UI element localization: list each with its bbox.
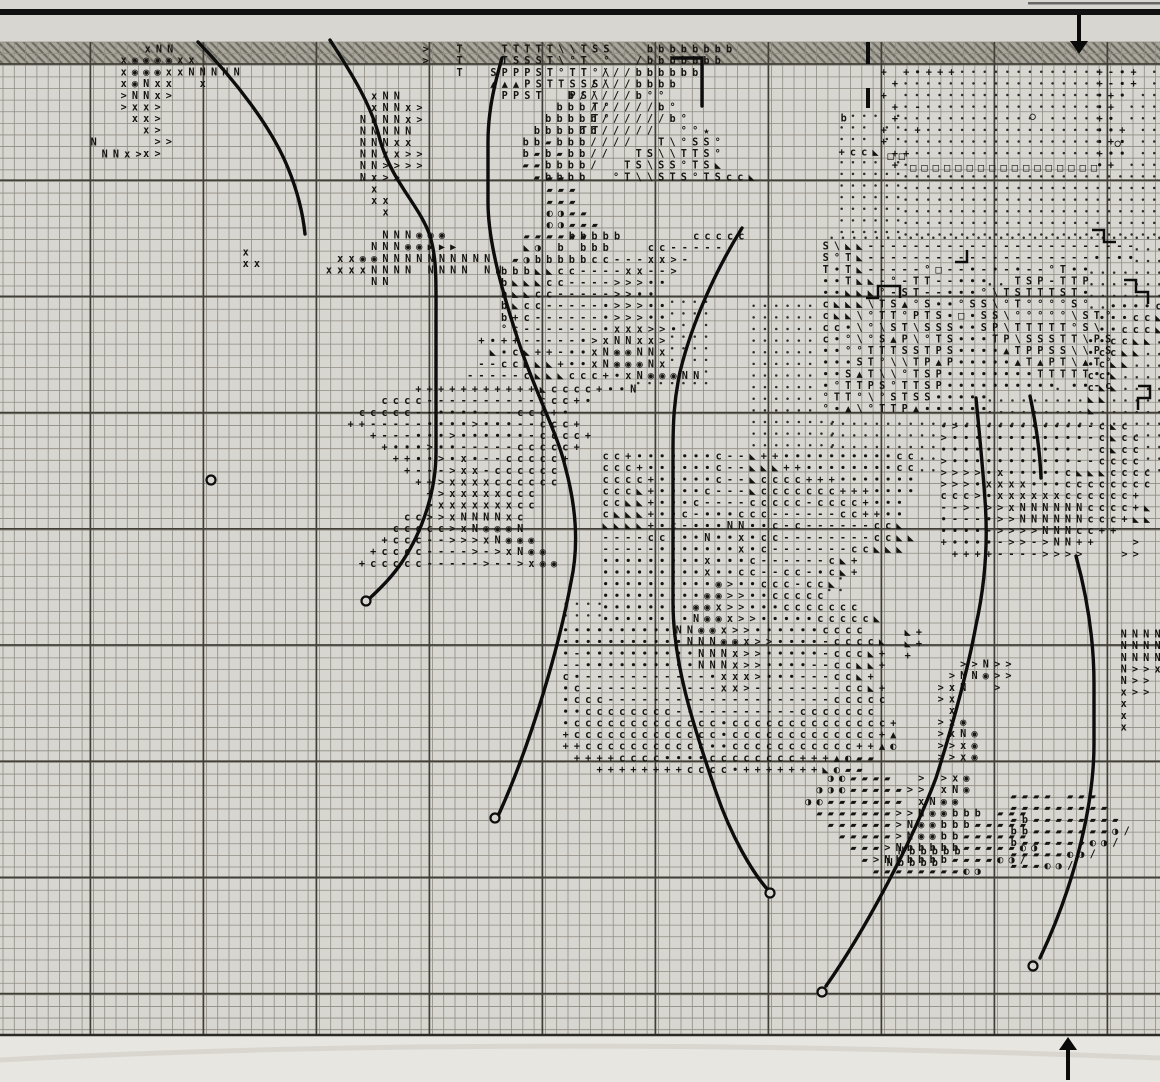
svg-text:c: c [1121, 336, 1127, 347]
svg-text:c: c [551, 466, 557, 477]
svg-text:▰: ▰ [884, 831, 891, 843]
svg-text:+: + [1133, 491, 1139, 502]
svg-text:>: > [994, 660, 1000, 671]
svg-text:▰: ▰ [862, 773, 869, 785]
svg-text:c: c [1099, 445, 1105, 456]
svg-text:/: / [647, 126, 653, 137]
svg-text:□: □ [1080, 162, 1087, 174]
svg-text:-: - [682, 255, 688, 266]
svg-text:◣: ◣ [896, 520, 903, 532]
svg-text:S: S [569, 79, 575, 90]
svg-text:>: > [938, 718, 944, 729]
svg-text:▰: ▰ [1033, 849, 1040, 861]
svg-text:c: c [562, 431, 568, 442]
svg-text:◉: ◉ [918, 831, 925, 843]
svg-text:x: x [254, 259, 260, 270]
svg-text:N: N [648, 348, 654, 359]
svg-text:c: c [777, 718, 783, 729]
svg-text:◣: ◣ [636, 485, 643, 497]
svg-text:c: c [528, 477, 534, 488]
svg-text:c: c [772, 591, 778, 602]
svg-text:>: > [873, 855, 879, 866]
svg-text:>: > [472, 536, 478, 547]
svg-text:c: c [614, 475, 620, 486]
svg-text:-: - [438, 559, 444, 570]
svg-text:c: c [749, 498, 755, 509]
svg-text:T: T [547, 79, 553, 90]
svg-text:-: - [992, 253, 998, 264]
svg-text:◣: ◣ [512, 300, 519, 312]
svg-text:N: N [721, 660, 727, 671]
svg-text:c: c [614, 486, 620, 497]
svg-text:c: c [659, 243, 665, 254]
svg-text:◣: ◣ [1133, 347, 1140, 359]
svg-text:◉: ◉ [721, 636, 728, 648]
svg-text:▲: ▲ [502, 78, 509, 90]
svg-text:c: c [868, 707, 874, 718]
svg-text:°: ° [890, 381, 896, 392]
svg-text:-: - [704, 243, 710, 254]
svg-text:-: - [569, 278, 575, 289]
svg-text:-: - [1094, 381, 1100, 392]
svg-text:+: + [914, 126, 920, 137]
svg-text:c: c [517, 477, 523, 488]
svg-text:-: - [546, 324, 552, 335]
svg-text:x: x [132, 102, 138, 113]
svg-text:x: x [704, 568, 710, 579]
svg-text:◉: ◉ [439, 230, 446, 242]
svg-text:c: c [687, 742, 693, 753]
svg-text:>: > [997, 514, 1003, 525]
svg-text:>: > [637, 313, 643, 324]
svg-text:>: > [755, 637, 761, 648]
svg-text:T: T [669, 172, 675, 183]
svg-text:c: c [528, 443, 534, 454]
svg-text:-: - [574, 660, 580, 671]
svg-text:-: - [381, 431, 387, 442]
svg-text:c: c [952, 491, 958, 502]
svg-text:+: + [974, 549, 980, 560]
svg-text:x: x [1054, 491, 1060, 502]
svg-text:N: N [360, 115, 366, 126]
svg-text:S: S [947, 346, 953, 357]
svg-text:◑: ◑ [828, 773, 835, 785]
svg-text:▰: ▰ [1022, 860, 1029, 872]
svg-text:c: c [642, 742, 648, 753]
svg-text:+: + [868, 742, 874, 753]
svg-text:+: + [664, 765, 670, 776]
svg-text:>: > [438, 477, 444, 488]
svg-text:\: \ [647, 161, 653, 172]
svg-text:°: ° [603, 56, 609, 67]
chart-svg: x◉◉◉◉xxxNNx◉◉◉xxNNNNNx◉Nxxx>NNx>>xx>xx>x… [0, 0, 1160, 1082]
svg-text:S: S [1082, 311, 1088, 322]
svg-text:>: > [727, 591, 733, 602]
svg-text:N: N [394, 231, 400, 242]
svg-text:-: - [596, 684, 602, 695]
svg-text:b: b [557, 255, 563, 266]
svg-text:c: c [596, 707, 602, 718]
svg-text:c: c [862, 614, 868, 625]
svg-text:S: S [1037, 334, 1043, 345]
svg-text:°: ° [1071, 323, 1077, 334]
svg-text:▰: ▰ [839, 819, 846, 831]
svg-text:-: - [879, 265, 885, 276]
svg-text:T: T [902, 323, 908, 334]
svg-text:>: > [154, 137, 160, 148]
svg-text:+: + [755, 765, 761, 776]
svg-text:c: c [829, 568, 835, 579]
svg-text:▰: ▰ [1022, 849, 1029, 861]
svg-text:◣: ◣ [1144, 502, 1151, 514]
svg-text:-: - [806, 544, 812, 555]
svg-text:c: c [540, 443, 546, 454]
svg-text:\: \ [558, 56, 564, 67]
svg-text:+: + [879, 649, 885, 660]
svg-text:>: > [918, 785, 924, 796]
svg-text:-: - [811, 660, 817, 671]
svg-text:□: □ [887, 151, 894, 163]
svg-text:◣: ◣ [1087, 393, 1094, 405]
svg-text:-: - [1003, 242, 1009, 253]
svg-text:c: c [540, 477, 546, 488]
svg-text:c: c [585, 742, 591, 753]
svg-text:□: □ [899, 151, 906, 163]
svg-text:-: - [472, 443, 478, 454]
svg-text:N: N [200, 68, 206, 79]
svg-text:x: x [121, 68, 127, 79]
svg-text:▰: ▰ [569, 219, 576, 231]
svg-text:▶: ▶ [450, 242, 457, 253]
svg-text:°: ° [868, 311, 874, 322]
svg-text:◉: ◉ [540, 546, 547, 558]
svg-text:-: - [868, 242, 874, 253]
svg-text:c: c [625, 486, 631, 497]
svg-text:-: - [709, 695, 715, 706]
svg-text:▰: ▰ [592, 219, 599, 231]
svg-text:c: c [698, 765, 704, 776]
svg-text:x: x [603, 336, 609, 347]
svg-text:>: > [1031, 526, 1037, 537]
svg-text:-: - [591, 290, 597, 301]
svg-text:▰: ▰ [512, 254, 519, 266]
svg-text:S: S [669, 161, 675, 172]
svg-text:c: c [896, 452, 902, 463]
svg-text:c: c [738, 568, 744, 579]
svg-text:N: N [1065, 514, 1071, 525]
svg-text:◣: ◣ [868, 275, 875, 287]
svg-text:\: \ [868, 393, 874, 404]
svg-text:-: - [528, 419, 534, 430]
svg-text:▰: ▰ [1010, 802, 1017, 814]
svg-text:>: > [949, 741, 955, 752]
svg-text:c: c [596, 718, 602, 729]
svg-text:c: c [761, 533, 767, 544]
svg-text:°: ° [1003, 300, 1009, 311]
svg-text:N: N [1132, 641, 1138, 652]
svg-text:-: - [947, 242, 953, 253]
svg-text:-: - [483, 443, 489, 454]
svg-text:>: > [461, 536, 467, 547]
svg-text:◉: ◉ [517, 535, 524, 547]
svg-text:b: b [941, 832, 947, 843]
svg-text:c: c [851, 603, 857, 614]
svg-text:x: x [243, 248, 249, 259]
svg-text:b: b [647, 79, 653, 90]
svg-text:▰: ▰ [873, 773, 880, 785]
svg-text:-: - [591, 278, 597, 289]
svg-text:/: / [602, 149, 608, 160]
svg-text:S: S [1049, 334, 1055, 345]
svg-text:\: \ [868, 300, 874, 311]
svg-text:-: - [512, 371, 518, 382]
svg-text:c: c [817, 603, 823, 614]
svg-text:-: - [574, 649, 580, 660]
svg-text:◑: ◑ [523, 254, 530, 266]
svg-text:-: - [535, 313, 541, 324]
svg-text:N: N [394, 103, 400, 114]
svg-text:-: - [727, 452, 733, 463]
svg-text:□: □ [1091, 162, 1098, 174]
svg-text:-: - [795, 533, 801, 544]
svg-text:c: c [596, 730, 602, 741]
svg-text:\: \ [856, 311, 862, 322]
svg-text:-: - [772, 568, 778, 579]
svg-text:▰: ▰ [963, 854, 970, 866]
svg-text:+: + [948, 68, 954, 79]
svg-text:N: N [143, 79, 149, 90]
svg-text:P: P [992, 323, 998, 334]
svg-text:◑: ◑ [558, 207, 565, 219]
svg-text:-: - [913, 253, 919, 264]
svg-text:b: b [658, 103, 664, 114]
svg-text:-: - [370, 419, 376, 430]
svg-text:-: - [603, 290, 609, 301]
svg-text:x: x [371, 92, 377, 103]
svg-text:T: T [658, 137, 664, 148]
svg-text:◐: ◐ [546, 207, 553, 219]
svg-text:-: - [732, 707, 738, 718]
svg-text:c: c [528, 454, 534, 465]
svg-text:▰: ▰ [1067, 837, 1074, 849]
svg-text:▰: ▰ [1067, 791, 1074, 803]
svg-text:◣: ◣ [1133, 513, 1140, 525]
svg-text:N: N [382, 92, 388, 103]
svg-text:>: > [994, 683, 1000, 694]
svg-text:c: c [517, 512, 523, 523]
svg-text:+: + [926, 68, 932, 79]
svg-text:T: T [536, 91, 542, 102]
svg-text:-: - [608, 695, 614, 706]
svg-text:P: P [513, 91, 519, 102]
svg-text:N: N [405, 254, 411, 265]
svg-text:-: - [952, 514, 958, 525]
svg-text:◣: ◣ [885, 543, 892, 555]
svg-text:-: - [879, 253, 885, 264]
svg-text:c: c [851, 498, 857, 509]
svg-text:+: + [449, 385, 455, 396]
svg-text:c: c [834, 637, 840, 648]
svg-text:c: c [795, 603, 801, 614]
svg-text:▲: ▲ [513, 78, 520, 90]
french-knot-marker [491, 814, 500, 823]
svg-text:c: c [619, 753, 625, 764]
svg-text:x: x [483, 536, 489, 547]
svg-text:-: - [506, 408, 512, 419]
svg-text:+: + [546, 348, 552, 359]
svg-text:P: P [936, 369, 942, 380]
svg-text:-: - [952, 503, 958, 514]
svg-text:-: - [494, 443, 500, 454]
svg-text:°: ° [681, 126, 687, 137]
svg-text:c: c [603, 255, 609, 266]
svg-text:x: x [949, 694, 955, 705]
svg-text:c: c [427, 524, 433, 535]
svg-text:N: N [687, 637, 693, 648]
svg-text:/: / [624, 68, 630, 79]
svg-text:+: + [777, 765, 783, 776]
svg-text:\: \ [902, 358, 908, 369]
svg-text:b: b [545, 126, 551, 137]
svg-text:S: S [581, 79, 587, 90]
svg-text:N: N [698, 637, 704, 648]
svg-text:S: S [924, 300, 930, 311]
svg-text:\: \ [879, 369, 885, 380]
svg-text:°: ° [902, 369, 908, 380]
svg-text:c: c [682, 510, 688, 521]
svg-text:▰: ▰ [1067, 802, 1074, 814]
svg-text:>: > [625, 278, 631, 289]
svg-text:\: \ [1003, 323, 1009, 334]
svg-text:/: / [613, 91, 619, 102]
svg-text:c: c [648, 243, 654, 254]
svg-text:-: - [947, 265, 953, 276]
svg-text:◣: ◣ [749, 474, 756, 486]
svg-text:-: - [1015, 242, 1021, 253]
svg-text:S: S [890, 393, 896, 404]
svg-text:◉: ◉ [154, 55, 161, 67]
svg-text:c: c [868, 695, 874, 706]
svg-text:>: > [1020, 538, 1026, 549]
svg-text:°: ° [924, 334, 930, 345]
svg-text:x: x [461, 466, 467, 477]
svg-text:c: c [789, 742, 795, 753]
svg-text:°: ° [879, 288, 885, 299]
svg-text:>: > [1065, 549, 1071, 560]
svg-text:>: > [743, 626, 749, 637]
svg-text:c: c [1087, 526, 1093, 537]
svg-text:◑: ◑ [558, 219, 565, 231]
svg-text:c: c [1099, 456, 1105, 467]
svg-text:P: P [902, 404, 908, 415]
svg-text:>: > [941, 433, 947, 444]
svg-text:N: N [709, 649, 715, 660]
svg-text:◣: ◣ [904, 627, 911, 639]
svg-text:T: T [924, 346, 930, 357]
svg-text:>: > [472, 419, 478, 430]
svg-text:c: c [783, 603, 789, 614]
svg-text:x: x [438, 501, 444, 512]
svg-text:c: c [845, 660, 851, 671]
svg-text:S: S [902, 288, 908, 299]
svg-text:c: c [1110, 491, 1116, 502]
svg-text:-: - [822, 672, 828, 683]
svg-text:+: + [862, 510, 868, 521]
svg-text:◣: ◣ [625, 497, 632, 509]
svg-text:c: c [726, 172, 732, 183]
svg-text:>: > [1020, 526, 1026, 537]
svg-text:+: + [881, 68, 887, 79]
svg-text:◣: ◣ [772, 462, 779, 474]
svg-text:-: - [557, 313, 563, 324]
svg-text:b: b [909, 847, 915, 858]
svg-text:c: c [856, 695, 862, 706]
svg-text:◣: ◣ [834, 310, 841, 322]
svg-text:-: - [517, 396, 523, 407]
svg-text:▰: ▰ [1067, 814, 1074, 826]
svg-text:c: c [783, 486, 789, 497]
svg-text:□: □ [1023, 162, 1030, 174]
svg-text:c: c [845, 730, 851, 741]
svg-text:◉: ◉ [929, 819, 936, 831]
svg-text:-: - [981, 253, 987, 264]
svg-text:c: c [755, 730, 761, 741]
svg-text:◣: ◣ [535, 370, 542, 382]
svg-text:T: T [703, 172, 709, 183]
svg-text:T: T [1026, 323, 1032, 334]
svg-text:T: T [890, 346, 896, 357]
svg-text:c: c [737, 172, 743, 183]
svg-text:◣: ◣ [840, 555, 847, 567]
svg-text:-: - [806, 498, 812, 509]
svg-text:+: + [851, 486, 857, 497]
svg-text:◐: ◐ [839, 773, 846, 785]
svg-text:P: P [513, 68, 519, 79]
svg-text:▰: ▰ [1010, 791, 1017, 803]
svg-text:-: - [840, 533, 846, 544]
svg-text:/: / [647, 103, 653, 114]
svg-text:c: c [1110, 503, 1116, 514]
svg-text:T: T [1049, 323, 1055, 334]
svg-text:-: - [506, 559, 512, 570]
svg-text:▰: ▰ [1056, 802, 1063, 814]
svg-text:c: c [551, 385, 557, 396]
svg-text:/: / [636, 126, 642, 137]
svg-text:>: > [166, 91, 172, 102]
svg-text:▰: ▰ [828, 796, 835, 808]
svg-text:N: N [382, 103, 388, 114]
svg-text:◣: ◣ [1133, 335, 1140, 347]
svg-text:-: - [783, 544, 789, 555]
svg-text:c: c [885, 533, 891, 544]
svg-text:◣: ◣ [749, 462, 756, 474]
svg-text:N: N [517, 524, 523, 535]
svg-text:N: N [450, 265, 456, 276]
svg-text:N: N [1042, 514, 1048, 525]
svg-text:-: - [603, 278, 609, 289]
svg-text:-: - [415, 408, 421, 419]
svg-text:-: - [727, 486, 733, 497]
svg-text:b: b [943, 847, 949, 858]
svg-text:▲: ▲ [890, 729, 897, 741]
svg-text:c: c [517, 466, 523, 477]
svg-text:▰: ▰ [884, 807, 891, 819]
svg-text:T: T [879, 346, 885, 357]
svg-text:S: S [902, 346, 908, 357]
svg-text:x: x [166, 68, 172, 79]
svg-text:c: c [506, 466, 512, 477]
svg-text:◣: ◣ [546, 265, 553, 277]
